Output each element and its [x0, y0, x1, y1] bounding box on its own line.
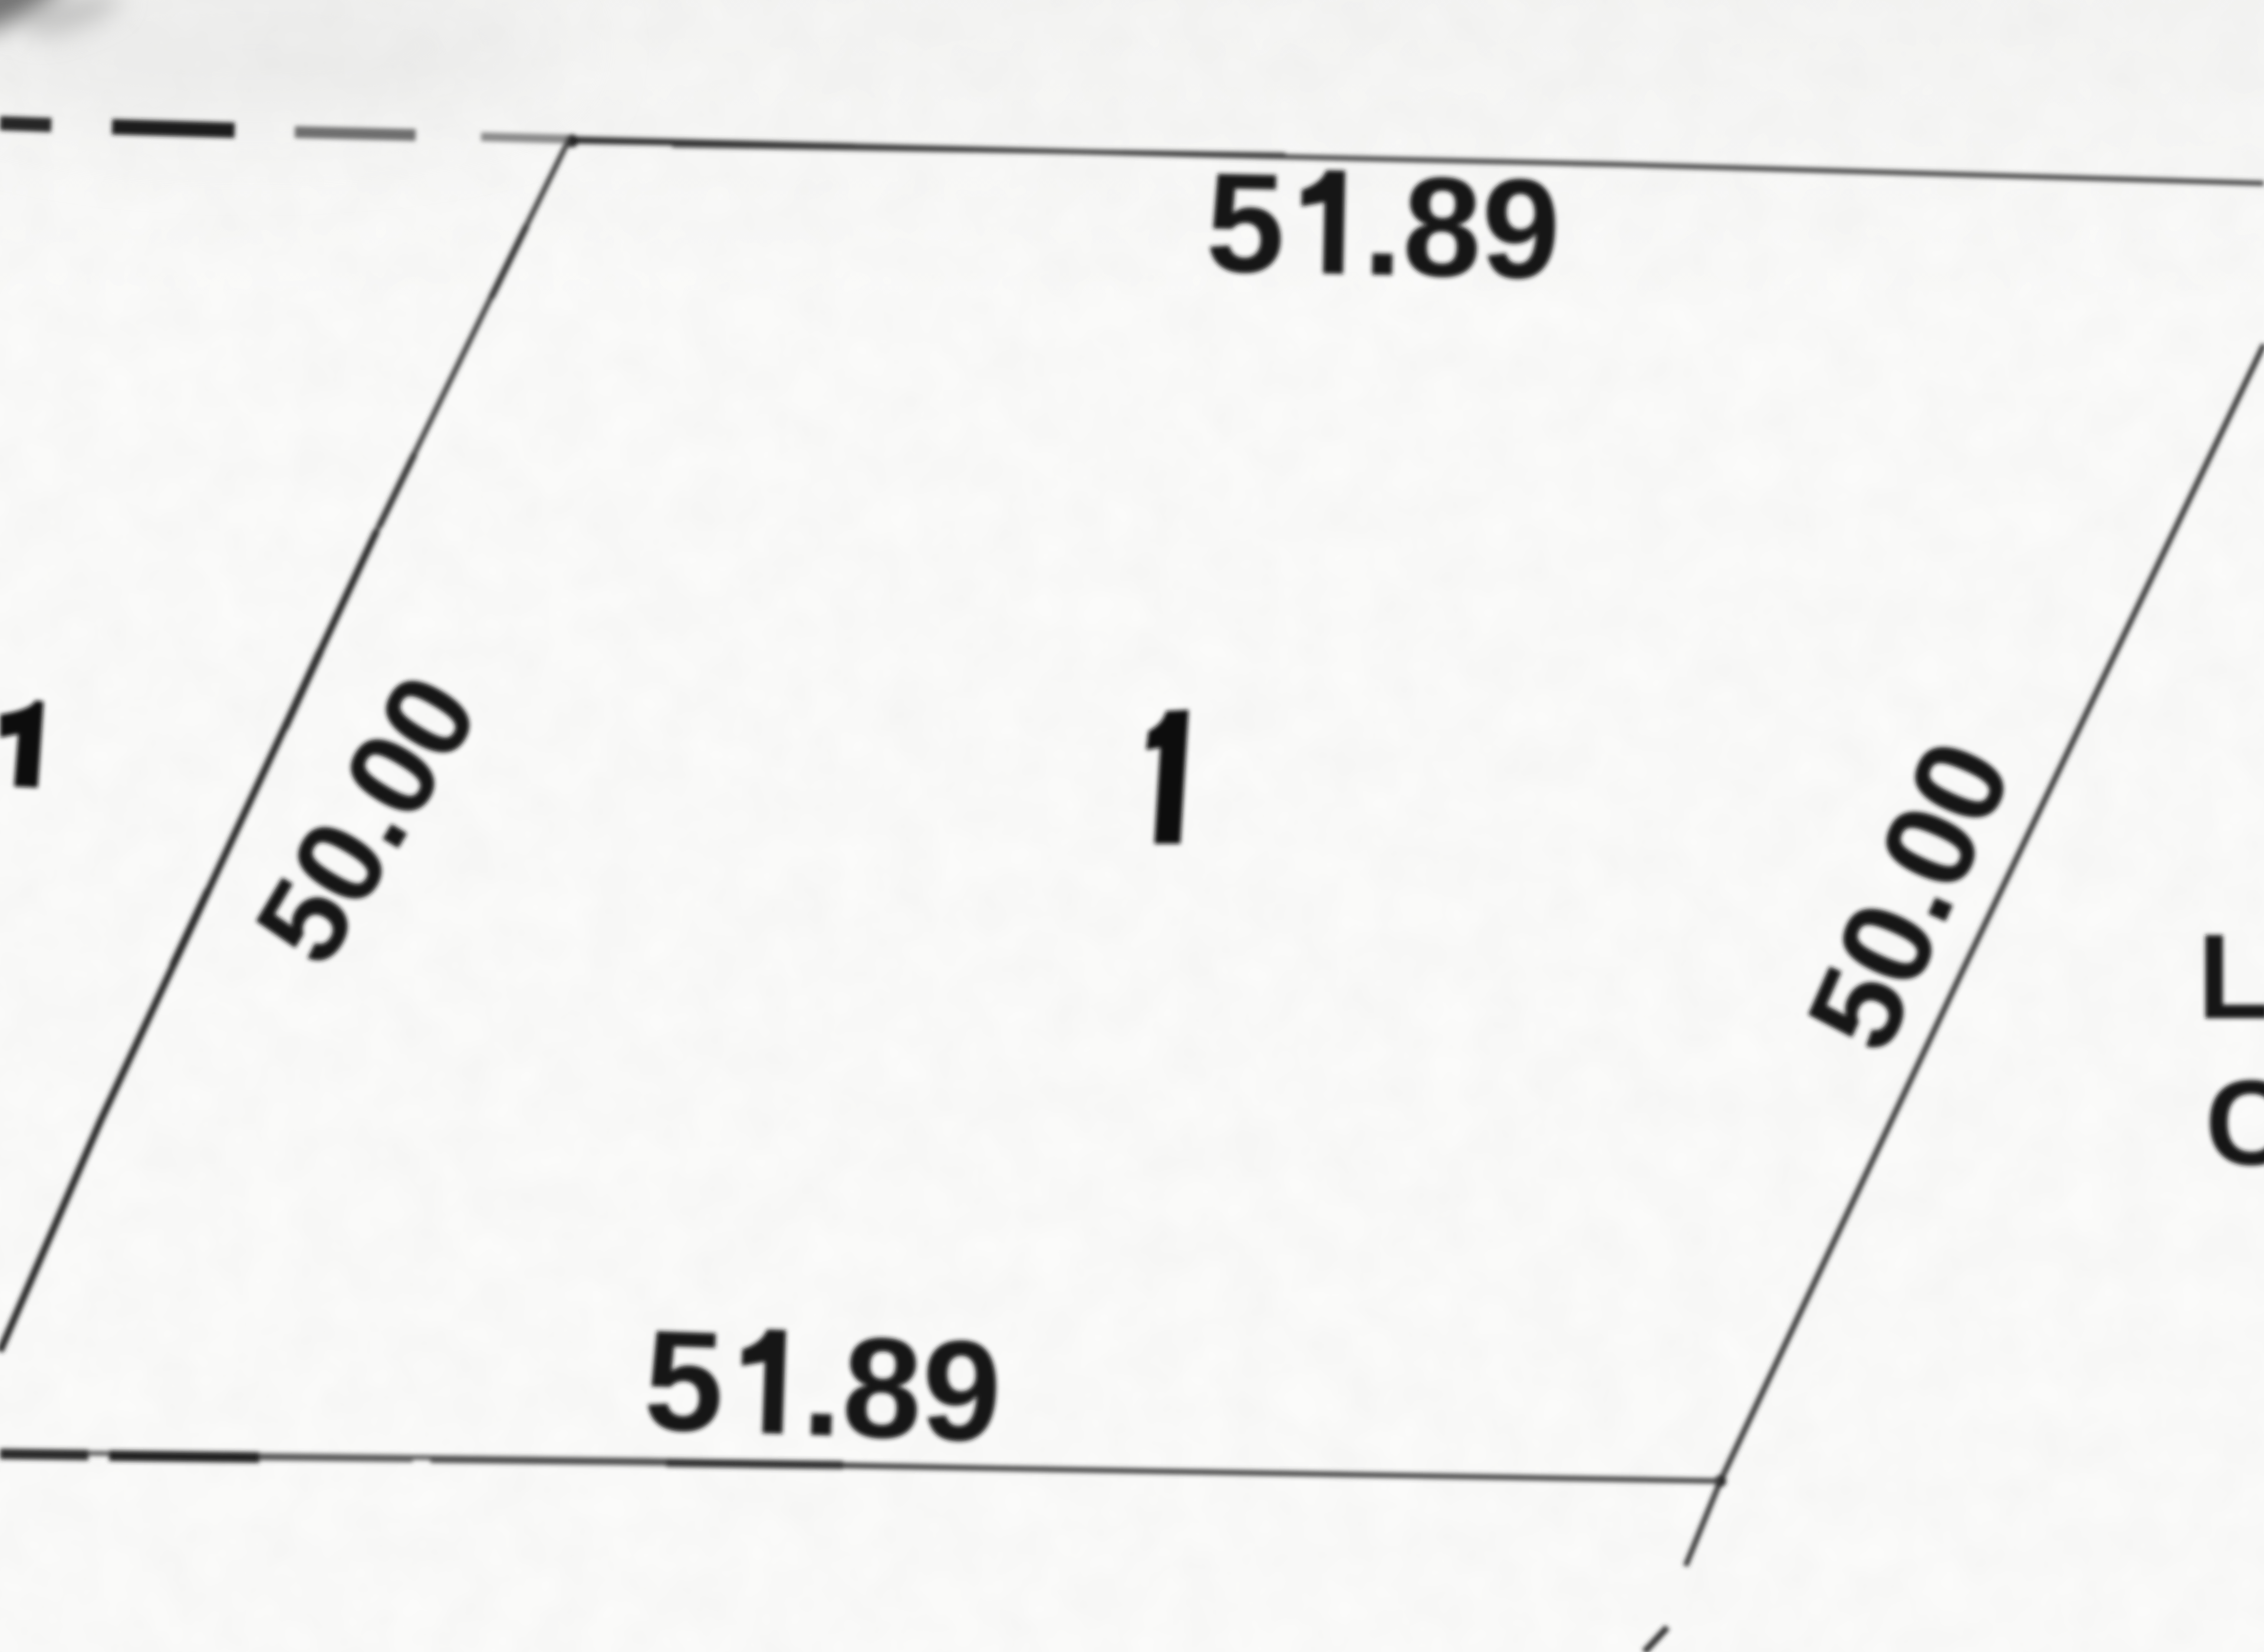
svg-text:L: L: [2197, 909, 2264, 1044]
svg-text:C: C: [2205, 1055, 2264, 1190]
svg-text:5: 5: [641, 1301, 726, 1463]
svg-text:.89: .89: [1362, 146, 1562, 308]
svg-text:5: 5: [1205, 143, 1286, 303]
svg-text:.89: .89: [800, 1306, 1004, 1472]
